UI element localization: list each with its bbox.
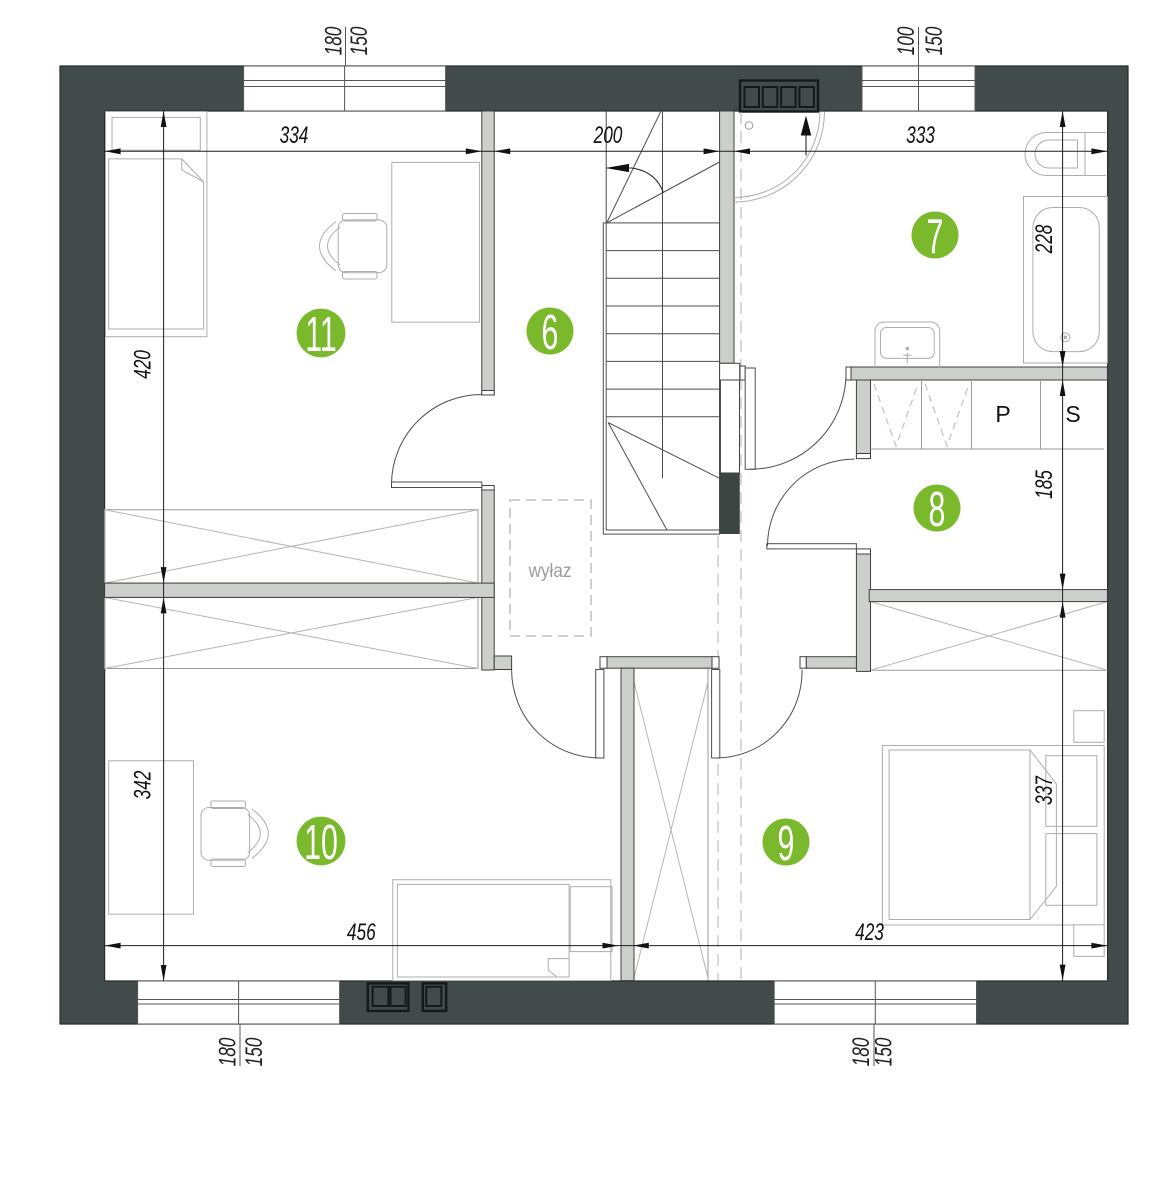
svg-text:456: 456 (347, 919, 376, 945)
svg-text:180: 180 (215, 1037, 241, 1066)
svg-text:200: 200 (593, 122, 623, 148)
svg-text:180: 180 (321, 26, 347, 55)
svg-text:11: 11 (305, 307, 337, 362)
svg-text:228: 228 (1031, 224, 1057, 254)
svg-text:420: 420 (130, 350, 156, 379)
svg-text:P: P (995, 401, 1010, 427)
svg-text:wyłaz: wyłaz (528, 560, 572, 581)
svg-text:185: 185 (1031, 470, 1057, 499)
svg-text:334: 334 (280, 122, 309, 148)
svg-text:423: 423 (855, 919, 884, 945)
svg-text:7: 7 (927, 209, 944, 264)
svg-text:337: 337 (1031, 775, 1057, 805)
svg-text:150: 150 (871, 1037, 897, 1066)
svg-text:342: 342 (130, 770, 156, 799)
svg-text:150: 150 (346, 26, 372, 55)
svg-text:S: S (1065, 401, 1080, 427)
svg-text:100: 100 (893, 26, 919, 55)
svg-text:150: 150 (241, 1037, 267, 1066)
svg-text:150: 150 (921, 26, 947, 55)
svg-text:8: 8 (929, 482, 946, 537)
svg-text:333: 333 (906, 122, 935, 148)
svg-text:10: 10 (304, 815, 338, 870)
svg-text:9: 9 (778, 816, 795, 871)
svg-text:6: 6 (542, 305, 559, 360)
